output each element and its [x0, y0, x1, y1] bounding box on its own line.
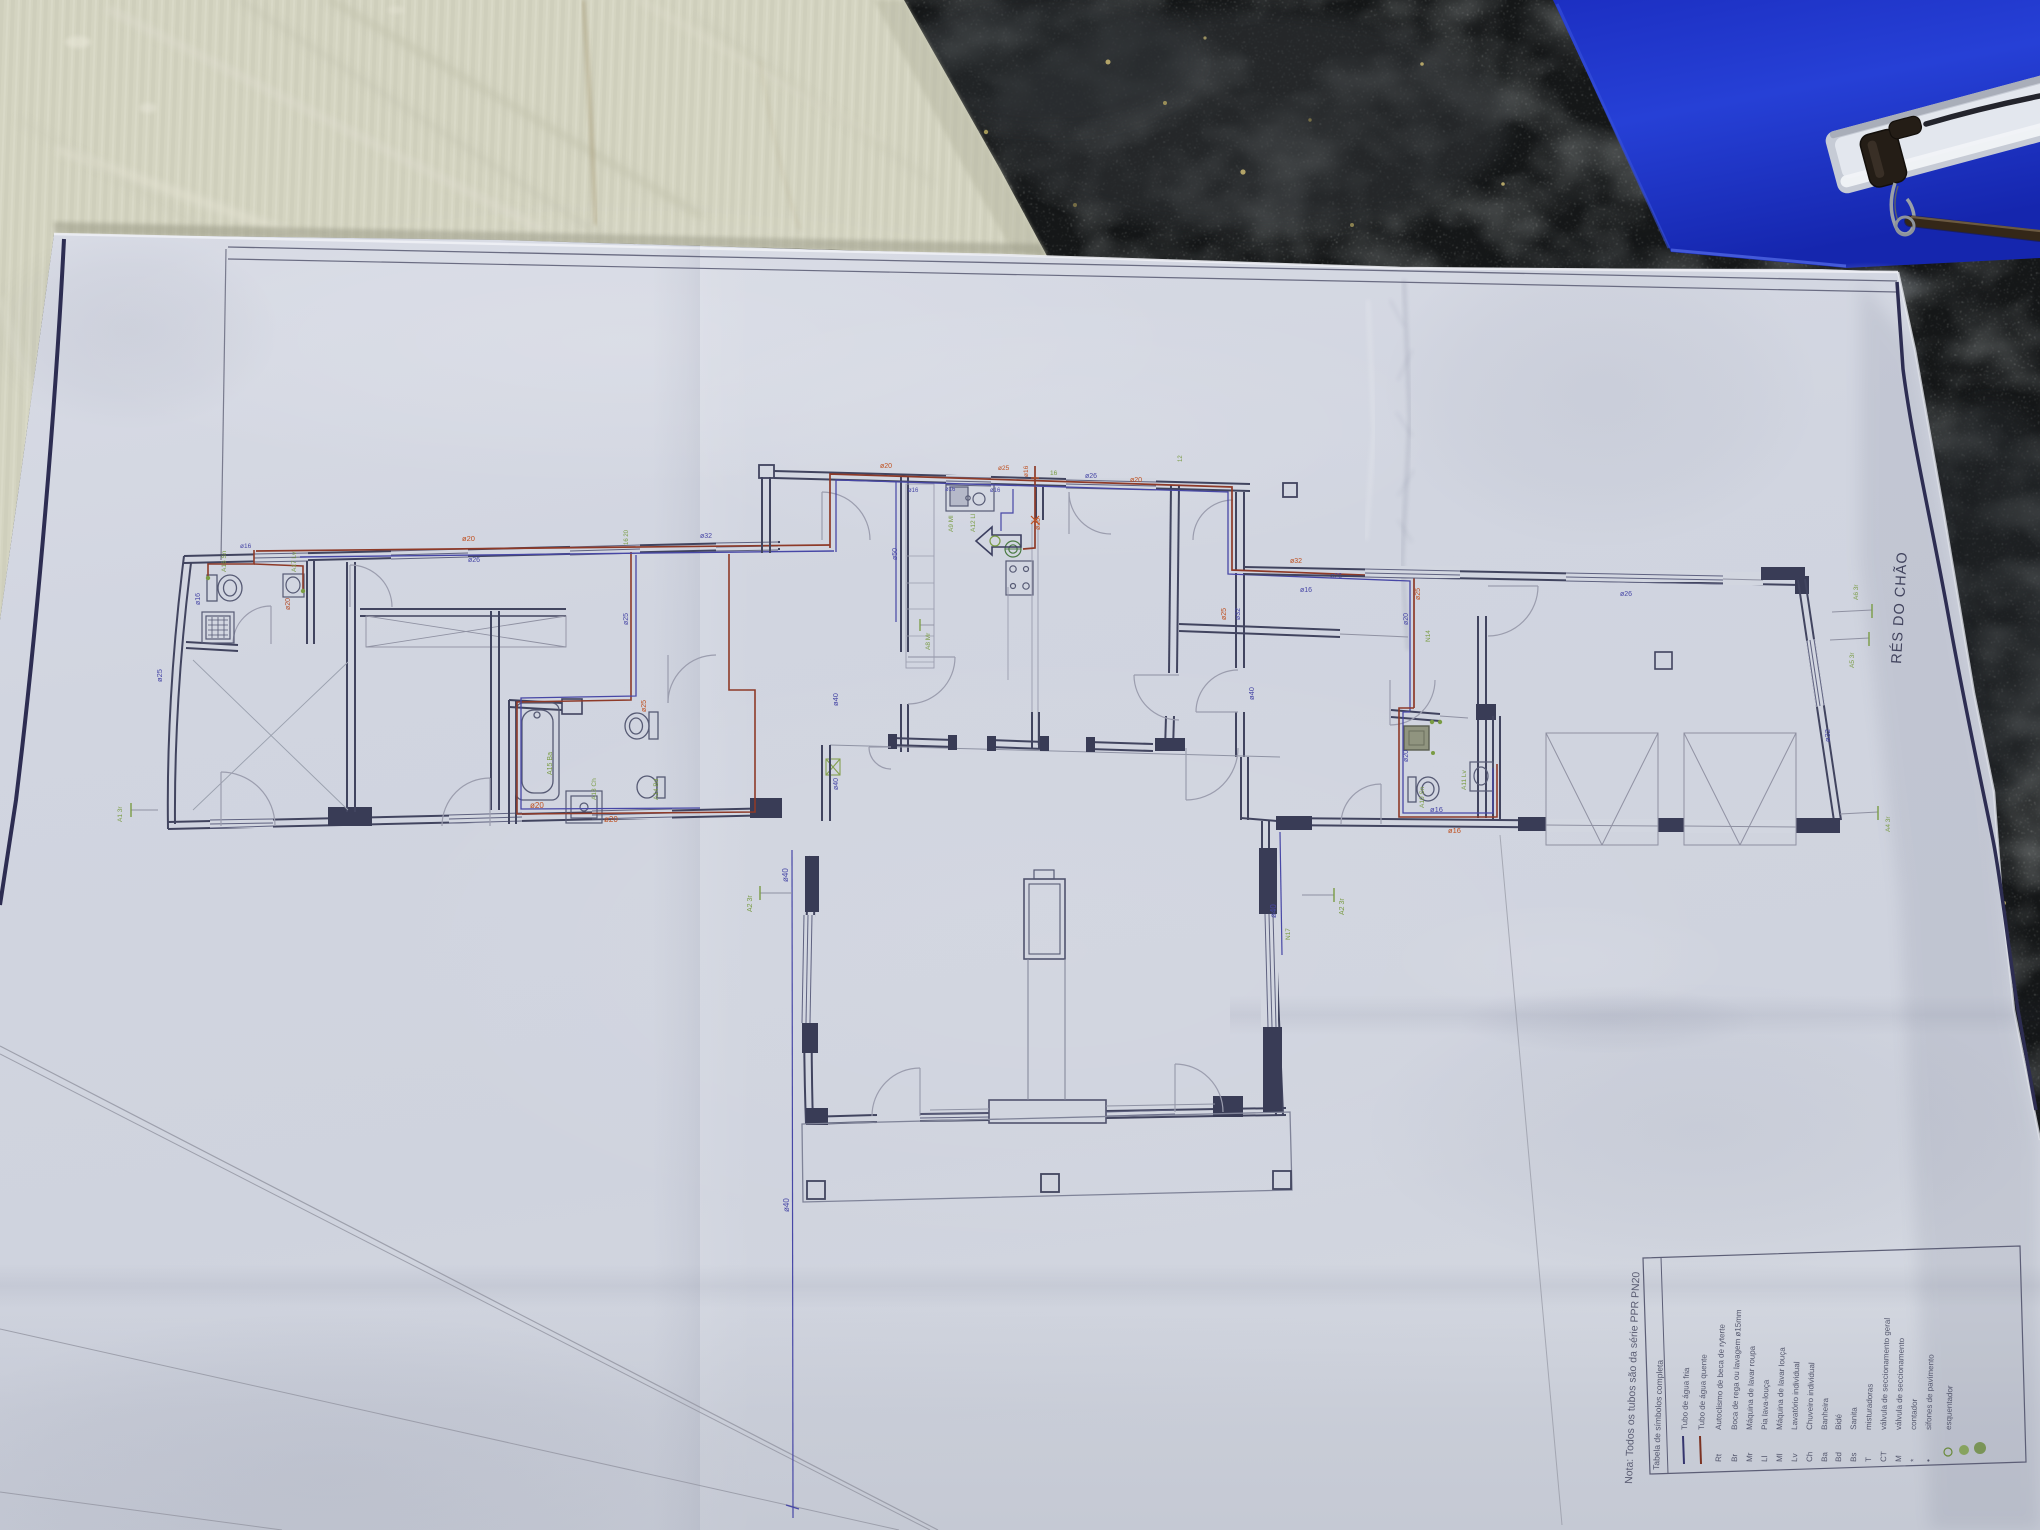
svg-text:ø26: ø26	[1620, 591, 1632, 598]
svg-text:ø16: ø16	[240, 543, 252, 550]
svg-text:ø20: ø20	[1403, 613, 1410, 625]
svg-text:A8 Mr: A8 Mr	[925, 632, 932, 650]
svg-text:•: •	[1924, 1459, 1933, 1462]
svg-text:ø40: ø40	[782, 1198, 791, 1212]
svg-text:A9 Ml: A9 Ml	[948, 515, 955, 532]
svg-text:ø20: ø20	[604, 815, 618, 824]
svg-text:ø40: ø40	[1269, 904, 1278, 918]
svg-text:ø25: ø25	[1221, 608, 1228, 620]
svg-text:CT: CT	[1879, 1451, 1888, 1462]
svg-text:Pia lava-louça: Pia lava-louça	[1760, 1379, 1771, 1430]
svg-text:ø40: ø40	[833, 778, 840, 790]
svg-text:ø16: ø16	[945, 487, 956, 493]
svg-text:ø26: ø26	[1085, 473, 1097, 480]
svg-text:ø20: ø20	[1403, 750, 1410, 762]
svg-text:ø32: ø32	[1235, 608, 1242, 620]
svg-text:ø50: ø50	[892, 548, 899, 560]
svg-text:A15 Ba: A15 Ba	[547, 752, 554, 775]
svg-text:ø20: ø20	[530, 801, 544, 810]
svg-text:ø32: ø32	[700, 533, 712, 540]
svg-text:Mr: Mr	[1745, 1452, 1754, 1462]
svg-text:ø32: ø32	[1823, 729, 1832, 742]
svg-text:Bs: Bs	[1849, 1452, 1858, 1462]
svg-text:Bidé: Bidé	[1834, 1413, 1844, 1430]
svg-text:*: *	[1909, 1459, 1918, 1462]
svg-text:ø25: ø25	[155, 669, 164, 682]
svg-text:ø20: ø20	[1130, 477, 1142, 484]
svg-text:ø20: ø20	[880, 463, 892, 470]
svg-text:Rt: Rt	[1714, 1453, 1723, 1462]
svg-text:16: 16	[1050, 470, 1058, 477]
svg-text:ø25: ø25	[641, 700, 648, 712]
svg-text:ø25: ø25	[998, 465, 1010, 472]
svg-text:ø40: ø40	[781, 868, 790, 882]
svg-text:Ml: Ml	[1775, 1453, 1784, 1462]
svg-text:A10 Sn: A10 Sn	[1419, 786, 1426, 808]
svg-text:A13 Ch: A13 Ch	[591, 778, 598, 800]
svg-text:ø16: ø16	[1448, 826, 1461, 835]
svg-text:A17 Lv: A17 Lv	[291, 551, 298, 572]
svg-text:12: 12	[1178, 455, 1184, 462]
svg-text:ø40: ø40	[831, 693, 840, 706]
svg-text:ø16: ø16	[195, 593, 202, 605]
svg-text:ø16: ø16	[1430, 805, 1443, 814]
svg-text:Br: Br	[1730, 1453, 1739, 1462]
svg-text:ø25: ø25	[623, 613, 630, 625]
svg-text:ø26: ø26	[468, 557, 480, 564]
svg-text:ø25: ø25	[1415, 588, 1422, 600]
svg-text:ø16: ø16	[990, 488, 1001, 494]
svg-text:misturadoras: misturadoras	[1864, 1384, 1875, 1431]
svg-text:ø16: ø16	[1300, 587, 1312, 594]
svg-text:ø20: ø20	[462, 534, 475, 543]
svg-text:A14 Bd: A14 Bd	[653, 778, 660, 800]
svg-text:esquentador: esquentador	[1944, 1385, 1955, 1430]
svg-text:ø25: ø25	[1035, 518, 1042, 530]
svg-text:A2 3r: A2 3r	[1339, 898, 1346, 915]
svg-text:Banheira: Banheira	[1820, 1397, 1830, 1430]
svg-text:A1 3r: A1 3r	[117, 806, 124, 822]
svg-text:contador: contador	[1909, 1398, 1919, 1430]
svg-text:T: T	[1864, 1457, 1873, 1462]
svg-text:A4 3r: A4 3r	[1885, 816, 1892, 832]
svg-text:Lv: Lv	[1790, 1453, 1799, 1462]
svg-text:A16 Sn: A16 Sn	[221, 550, 228, 572]
svg-text:A2 3r: A2 3r	[747, 895, 754, 912]
svg-text:ø16: ø16	[1023, 465, 1030, 477]
svg-text:Ll: Ll	[1760, 1455, 1769, 1462]
svg-text:M: M	[1894, 1455, 1903, 1462]
svg-text:Sanita: Sanita	[1849, 1407, 1859, 1431]
svg-text:N14: N14	[1425, 630, 1432, 642]
svg-text:ø16: ø16	[908, 488, 919, 494]
svg-text:Ch: Ch	[1805, 1452, 1814, 1463]
svg-text:ø20: ø20	[285, 598, 292, 610]
svg-text:A11 Lv: A11 Lv	[1461, 769, 1468, 790]
svg-text:A5 3r: A5 3r	[1849, 652, 1856, 668]
svg-text:Ba: Ba	[1820, 1451, 1829, 1462]
svg-text:A12 Ll: A12 Ll	[970, 513, 977, 532]
svg-text:Bd: Bd	[1834, 1452, 1843, 1462]
svg-text:16 20: 16 20	[624, 529, 630, 545]
svg-text:ø40: ø40	[1247, 687, 1256, 700]
svg-text:A6 3r: A6 3r	[1853, 584, 1860, 600]
svg-text:N17: N17	[1285, 928, 1292, 940]
svg-text:ø32: ø32	[1290, 558, 1302, 565]
